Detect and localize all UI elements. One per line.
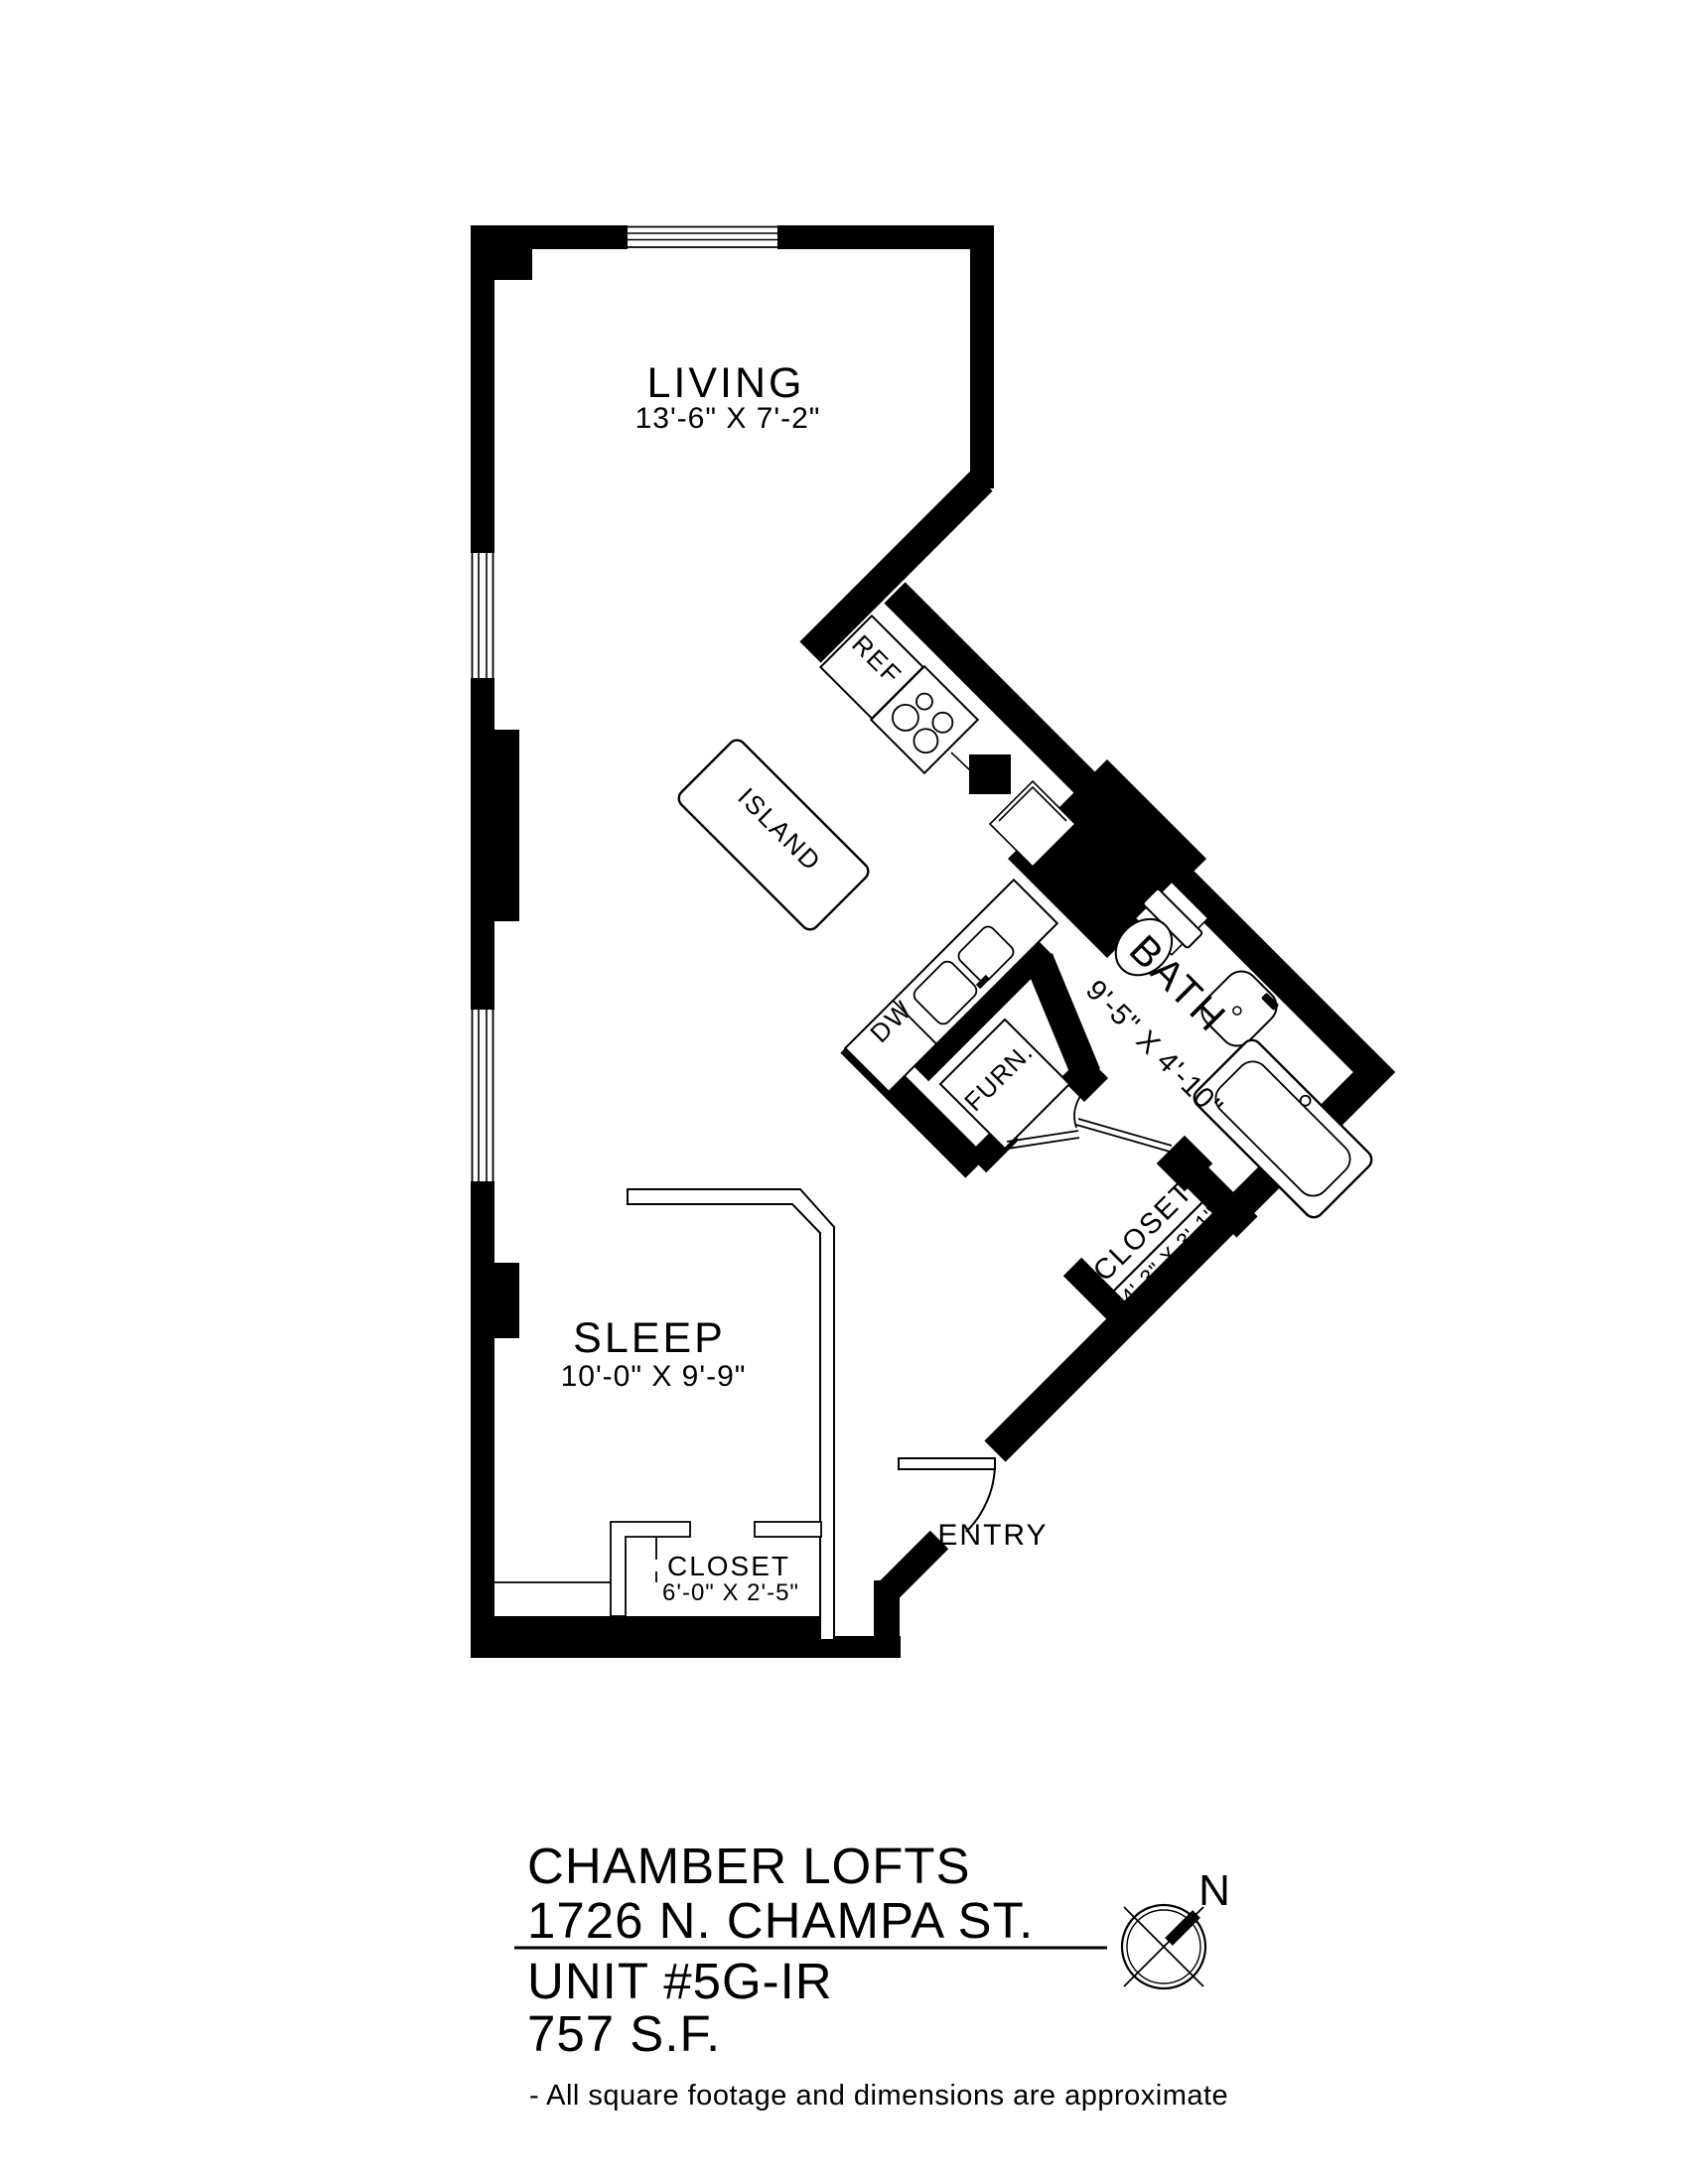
square-footage: 757 S.F. bbox=[527, 2005, 721, 2062]
compass-north-label: N bbox=[1198, 1866, 1230, 1915]
living-label: LIVING bbox=[647, 359, 805, 407]
entry-label: ENTRY bbox=[937, 1519, 1048, 1552]
sink-faucet-dot bbox=[991, 988, 998, 995]
counter-edge bbox=[951, 752, 971, 771]
sleep-dims: 10'-0" X 9'-9" bbox=[561, 1360, 747, 1393]
kitchen-column bbox=[969, 754, 1011, 794]
bath-door bbox=[1074, 1093, 1172, 1152]
bottom-wall bbox=[471, 1616, 821, 1658]
right-wall bbox=[970, 225, 994, 488]
window-top bbox=[628, 225, 777, 249]
living-dims: 13'-6" X 7'-2" bbox=[635, 402, 821, 435]
left-wall-pilaster-lower bbox=[494, 1263, 519, 1338]
entry-door-leaf bbox=[899, 1458, 995, 1469]
window-left-upper bbox=[471, 553, 494, 678]
fixtures bbox=[675, 615, 1375, 1532]
footer: CHAMBER LOFTS 1726 N. CHAMPA ST. UNIT #5… bbox=[514, 1838, 1228, 2112]
left-wall-pilaster-upper bbox=[494, 730, 519, 921]
compass-north-needle bbox=[1169, 1914, 1196, 1942]
walls bbox=[471, 225, 1374, 1658]
compass: N bbox=[1122, 1866, 1230, 1988]
windows bbox=[471, 225, 1208, 1181]
window-left-lower bbox=[471, 1010, 494, 1181]
disclaimer-text: - All square footage and dimensions are … bbox=[529, 2080, 1228, 2112]
unit-number: UNIT #5G-IR bbox=[527, 1953, 833, 2009]
sleep-closet-label: CLOSET bbox=[667, 1551, 790, 1581]
sleep-label: SLEEP bbox=[573, 1314, 726, 1362]
floor-plan-drawing: LIVING 13'-6" X 7'-2" SLEEP 10'-0" X 9'-… bbox=[0, 0, 1688, 2184]
sleep-closet-dims: 6'-0" X 2'-5" bbox=[662, 1579, 799, 1606]
building-name: CHAMBER LOFTS bbox=[527, 1838, 971, 1894]
left-wall bbox=[471, 225, 494, 1658]
street-address: 1726 N. CHAMPA ST. bbox=[527, 1892, 1034, 1949]
bath-northwest-wall bbox=[1039, 959, 1086, 1074]
living-diagonal-wall bbox=[810, 480, 982, 652]
floor-plan-page: LIVING 13'-6" X 7'-2" SLEEP 10'-0" X 9'-… bbox=[0, 0, 1688, 2184]
top-left-corner-step bbox=[494, 249, 532, 280]
